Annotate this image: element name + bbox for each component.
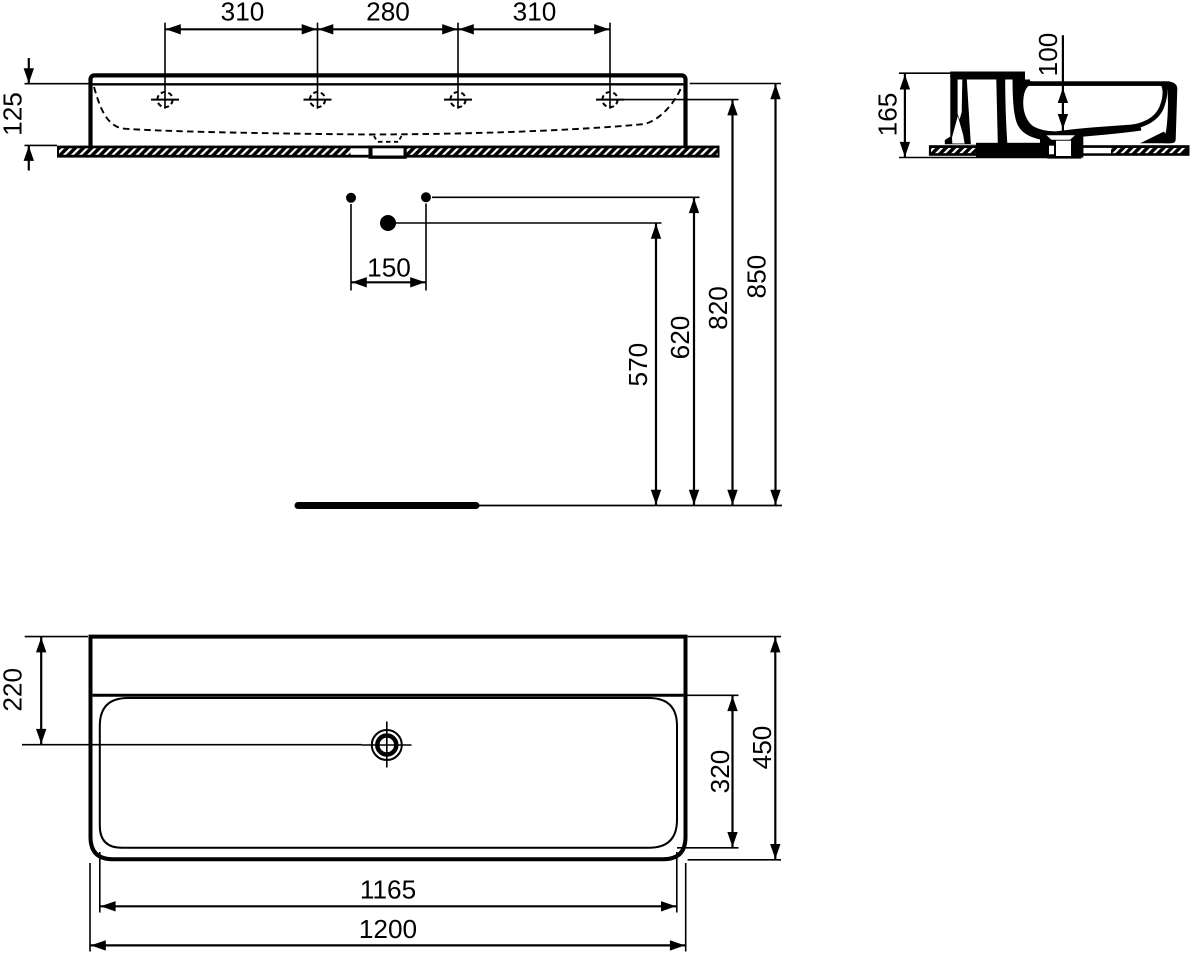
svg-text:570: 570: [623, 343, 653, 387]
svg-text:150: 150: [367, 252, 411, 282]
svg-text:310: 310: [513, 0, 557, 27]
svg-text:850: 850: [742, 255, 772, 299]
svg-text:165: 165: [873, 93, 903, 137]
svg-text:220: 220: [0, 668, 27, 712]
svg-text:310: 310: [221, 0, 265, 27]
svg-text:1165: 1165: [360, 875, 416, 905]
svg-text:1200: 1200: [359, 914, 417, 944]
svg-text:100: 100: [1033, 33, 1063, 77]
svg-text:125: 125: [0, 92, 27, 136]
svg-text:450: 450: [747, 726, 777, 770]
svg-text:620: 620: [665, 316, 695, 360]
svg-text:820: 820: [703, 286, 733, 330]
svg-text:320: 320: [705, 750, 735, 794]
svg-text:280: 280: [366, 0, 410, 27]
